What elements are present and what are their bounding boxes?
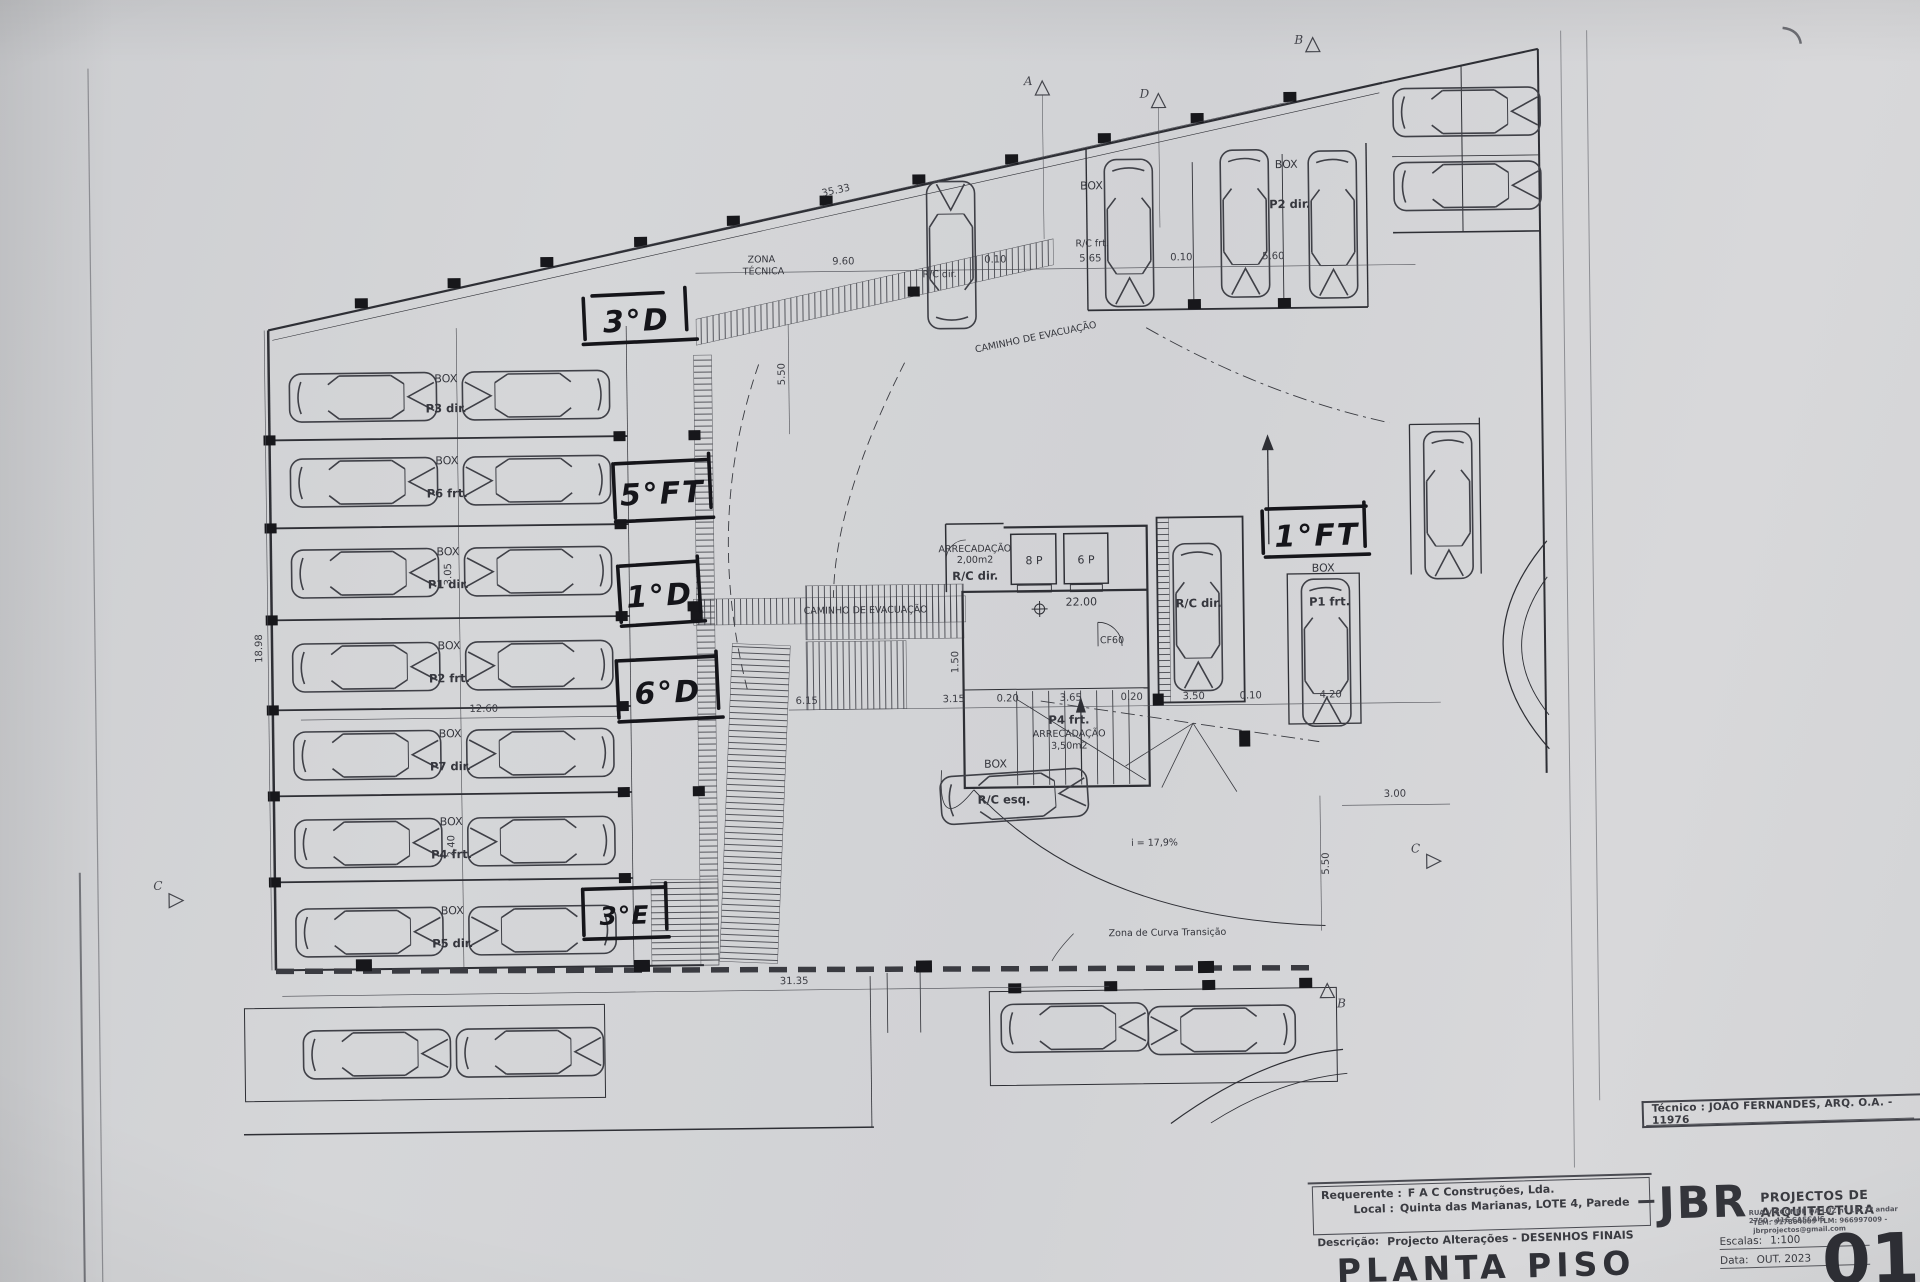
label-rc-dir-top: R/C dir. <box>922 269 956 280</box>
dim-315: 3.15 <box>943 694 965 705</box>
car <box>1394 161 1542 211</box>
car <box>926 181 976 329</box>
dim-300: 3.00 <box>1384 789 1406 800</box>
label-p1: P1 frt. <box>1309 594 1350 608</box>
label-stall-r4: P2 frt. <box>429 671 470 685</box>
label-p4: P4 frt. <box>1048 712 1089 726</box>
dim-565: 5.65 <box>1079 253 1101 264</box>
escala-value: 1:100 <box>1770 1234 1801 1247</box>
dim-020a: 0.20 <box>997 693 1019 704</box>
requerente-label: Requerente : <box>1321 1187 1402 1202</box>
label-arrec-big-area: 3,50m2 <box>1051 740 1088 751</box>
car <box>1001 1003 1149 1053</box>
dim-365: 3.65 <box>1060 693 1082 704</box>
label-box-r3: BOX <box>436 545 459 558</box>
dim-550a: 5.50 <box>777 363 788 385</box>
car <box>462 370 610 420</box>
handwritten-3d-text: 3°D <box>602 302 670 340</box>
dim-350: 3.50 <box>1183 691 1205 702</box>
dim-560: 5.60 <box>1262 251 1284 262</box>
label-box-esq: BOX <box>984 757 1007 770</box>
car <box>289 372 437 422</box>
dim-1260: 12.60 <box>469 704 498 715</box>
label-caminho-top: CAMINHO DE EVACUAÇÃO <box>974 320 1097 356</box>
car <box>1393 87 1541 137</box>
label-stall-r5: P7 dir. <box>430 759 471 774</box>
label-arrec-small: ARRECADAÇÃO <box>938 543 1011 555</box>
title-block-technician: Técnico : JOÃO FERNANDES, ARQ. O.A. - 11… <box>1642 1093 1920 1128</box>
label-caminho-mid: CAMINHO DE EVACUAÇÃO <box>804 604 928 617</box>
car <box>1104 159 1154 307</box>
label-box-top1: BOX <box>1080 179 1103 192</box>
photographed-floor-plan-sheet: ZONA TÉCNICA CAMINHO DE EVACUAÇÃO Zona d… <box>0 0 1920 1282</box>
dim-615: 6.15 <box>796 696 818 707</box>
local-label: Local : <box>1353 1202 1394 1216</box>
label-level: 22.00 <box>1065 595 1097 608</box>
cars <box>286 87 1552 1079</box>
label-lift1: 8 P <box>1025 554 1043 567</box>
car <box>1148 1005 1296 1055</box>
car <box>295 818 443 868</box>
car <box>465 640 613 690</box>
label-arrec-big: ARRECADAÇÃO <box>1033 728 1106 740</box>
label-tecnica: TÉCNICA <box>742 265 785 278</box>
label-stall-r7: P5 dir. <box>432 936 473 951</box>
marker-a: A <box>1023 74 1033 88</box>
dim-240: 2.40 <box>446 835 457 857</box>
label-box-r5: BOX <box>439 727 462 740</box>
handwritten-1ft-text: 1°FT <box>1274 517 1360 555</box>
dim-550b: 5.50 <box>1321 852 1332 874</box>
car <box>464 546 612 596</box>
firm-logo: JBR <box>1658 1176 1749 1229</box>
dim-bottom-total: 31.35 <box>780 976 809 987</box>
label-rc-esq: R/C esq. <box>977 792 1030 807</box>
car <box>290 457 438 507</box>
jbr-dash <box>1638 1200 1654 1203</box>
label-box-r1: BOX <box>434 372 457 385</box>
label-box-r7: BOX <box>441 904 464 917</box>
handwritten-5ft-text: 5°FT <box>619 475 706 514</box>
escala-label: Escalas: <box>1719 1235 1762 1248</box>
car <box>1173 543 1223 691</box>
label-curva: Zona de Curva Transição <box>1109 927 1227 939</box>
car <box>467 728 615 778</box>
handwritten-6d-text: 6°D <box>634 674 702 712</box>
label-stall-r1: P3 dir. <box>426 401 467 416</box>
label-rc-dir-arrec: R/C dir. <box>952 569 998 584</box>
car <box>456 1027 604 1077</box>
car <box>1220 150 1270 298</box>
car <box>469 905 617 955</box>
label-box-r2: BOX <box>435 454 458 467</box>
dim-010a: 0.10 <box>984 254 1006 265</box>
car <box>303 1029 451 1079</box>
label-rc-dir-mid: R/C dir. <box>1175 596 1221 611</box>
handwritten-3e-text: 3°E <box>599 900 650 930</box>
handwritten-3d: 3°D <box>581 287 697 344</box>
data-label: Data: <box>1720 1254 1749 1267</box>
data-value: OUT. 2023 <box>1756 1252 1811 1266</box>
title-block-client-box: Requerente : F A C Construções, Lda. Loc… <box>1312 1177 1651 1235</box>
label-stall-r2: P6 frt. <box>427 486 468 500</box>
dim-020b: 0.20 <box>1121 692 1143 703</box>
marker-b-top: B <box>1293 33 1303 47</box>
car <box>294 730 442 780</box>
label-box-right: BOX <box>1312 561 1335 574</box>
label-box-top2: BOX <box>1275 158 1298 171</box>
dim-010b: 0.10 <box>1170 252 1192 263</box>
dim-top-total: 35.33 <box>821 183 851 200</box>
car <box>1308 151 1358 299</box>
marker-c-left: C <box>153 879 162 893</box>
label-p2: P2 dir. <box>1269 197 1310 212</box>
dim-960: 9.60 <box>832 256 854 267</box>
car <box>291 548 439 598</box>
handwritten-1d-text: 1°D <box>625 577 694 616</box>
dim-305: 3.05 <box>443 563 454 585</box>
sheet-number: 01 <box>1821 1217 1920 1282</box>
dim-010c: 0.10 <box>1240 690 1262 701</box>
dim-1898: 18.98 <box>254 634 265 663</box>
label-cf60: CF60 <box>1100 635 1124 646</box>
label-zona: ZONA <box>747 254 775 265</box>
label-lift2: 6 P <box>1077 553 1095 566</box>
floorplan-drawing: ZONA TÉCNICA CAMINHO DE EVACUAÇÃO Zona d… <box>0 0 1920 1282</box>
label-box-r4: BOX <box>438 639 461 652</box>
descricao-label: Descrição: <box>1317 1235 1379 1250</box>
level-mark <box>1032 601 1048 617</box>
car <box>463 455 611 505</box>
dim-420: 4.20 <box>1320 689 1342 700</box>
marker-d: D <box>1138 87 1149 101</box>
car <box>296 907 444 957</box>
label-box-r6: BOX <box>440 815 463 828</box>
car <box>1423 431 1473 579</box>
label-arrec-small-area: 2,00m2 <box>957 555 994 566</box>
handwritten-1ft: 1°FT <box>1262 502 1369 557</box>
label-slope: i = 17,9% <box>1131 837 1178 849</box>
title-block: Técnico : JOÃO FERNANDES, ARQ. O.A. - 11… <box>1306 1090 1917 1282</box>
label-rc-frt: R/C frt. <box>1075 238 1109 249</box>
dim-150: 1.50 <box>950 651 961 673</box>
up-arrow <box>1262 434 1274 450</box>
marker-b-bottom: B <box>1336 996 1346 1010</box>
car <box>468 816 616 866</box>
marker-c-right: C <box>1411 841 1420 855</box>
car <box>293 642 441 692</box>
